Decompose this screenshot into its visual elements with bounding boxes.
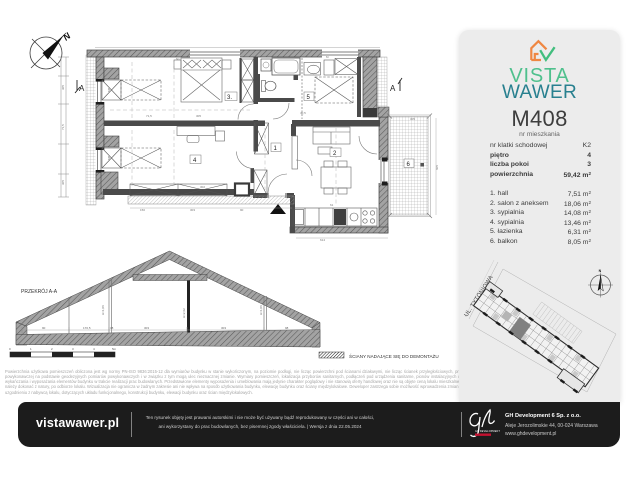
svg-text:305: 305 bbox=[61, 180, 65, 185]
svg-text:2: 2 bbox=[51, 347, 53, 351]
svg-text:614: 614 bbox=[320, 238, 325, 242]
svg-text:90: 90 bbox=[240, 208, 244, 212]
svg-text:PRZEKRÓJ A-A: PRZEKRÓJ A-A bbox=[21, 288, 58, 295]
svg-text:5m: 5m bbox=[112, 347, 117, 351]
svg-text:38: 38 bbox=[110, 326, 114, 330]
svg-text:303: 303 bbox=[221, 326, 226, 330]
svg-text:305: 305 bbox=[410, 117, 415, 121]
svg-text:H=2,62: H=2,62 bbox=[182, 308, 186, 318]
svg-text:305: 305 bbox=[196, 114, 201, 118]
svg-text:H=1,06: H=1,06 bbox=[101, 305, 105, 315]
svg-text:N1: N1 bbox=[176, 57, 180, 61]
svg-text:71,5: 71,5 bbox=[146, 114, 152, 118]
svg-text:H=1,06: H=1,06 bbox=[259, 305, 263, 315]
svg-text:0: 0 bbox=[9, 347, 11, 351]
svg-text:N: N bbox=[599, 269, 602, 273]
svg-text:3: 3 bbox=[72, 347, 74, 351]
svg-text:305: 305 bbox=[61, 85, 65, 90]
svg-text:1: 1 bbox=[30, 347, 32, 351]
svg-text:ŚCIANY NADAJĄCE SIĘ DO DEMONTA: ŚCIANY NADAJĄCE SIĘ DO DEMONTAŻU bbox=[349, 352, 439, 359]
svg-text:GH DEVELOPMENT: GH DEVELOPMENT bbox=[475, 430, 500, 433]
svg-text:N: N bbox=[61, 30, 73, 42]
svg-text:4: 4 bbox=[93, 347, 95, 351]
svg-text:170,5: 170,5 bbox=[83, 326, 91, 330]
svg-text:71,5: 71,5 bbox=[61, 124, 65, 130]
svg-text:M8: M8 bbox=[107, 88, 111, 92]
svg-text:61: 61 bbox=[330, 203, 334, 207]
svg-text:303: 303 bbox=[190, 208, 195, 212]
svg-text:303: 303 bbox=[144, 326, 149, 330]
svg-text:90: 90 bbox=[42, 326, 46, 330]
svg-text:302: 302 bbox=[200, 185, 205, 189]
svg-text:98: 98 bbox=[285, 326, 289, 330]
svg-text:A: A bbox=[390, 84, 396, 93]
svg-text:3.: 3. bbox=[227, 95, 232, 101]
svg-text:150: 150 bbox=[140, 208, 145, 212]
svg-text:M8: M8 bbox=[107, 156, 111, 160]
svg-text:605: 605 bbox=[435, 165, 439, 170]
svg-text:40,5: 40,5 bbox=[300, 111, 306, 115]
svg-text:A: A bbox=[79, 84, 85, 93]
